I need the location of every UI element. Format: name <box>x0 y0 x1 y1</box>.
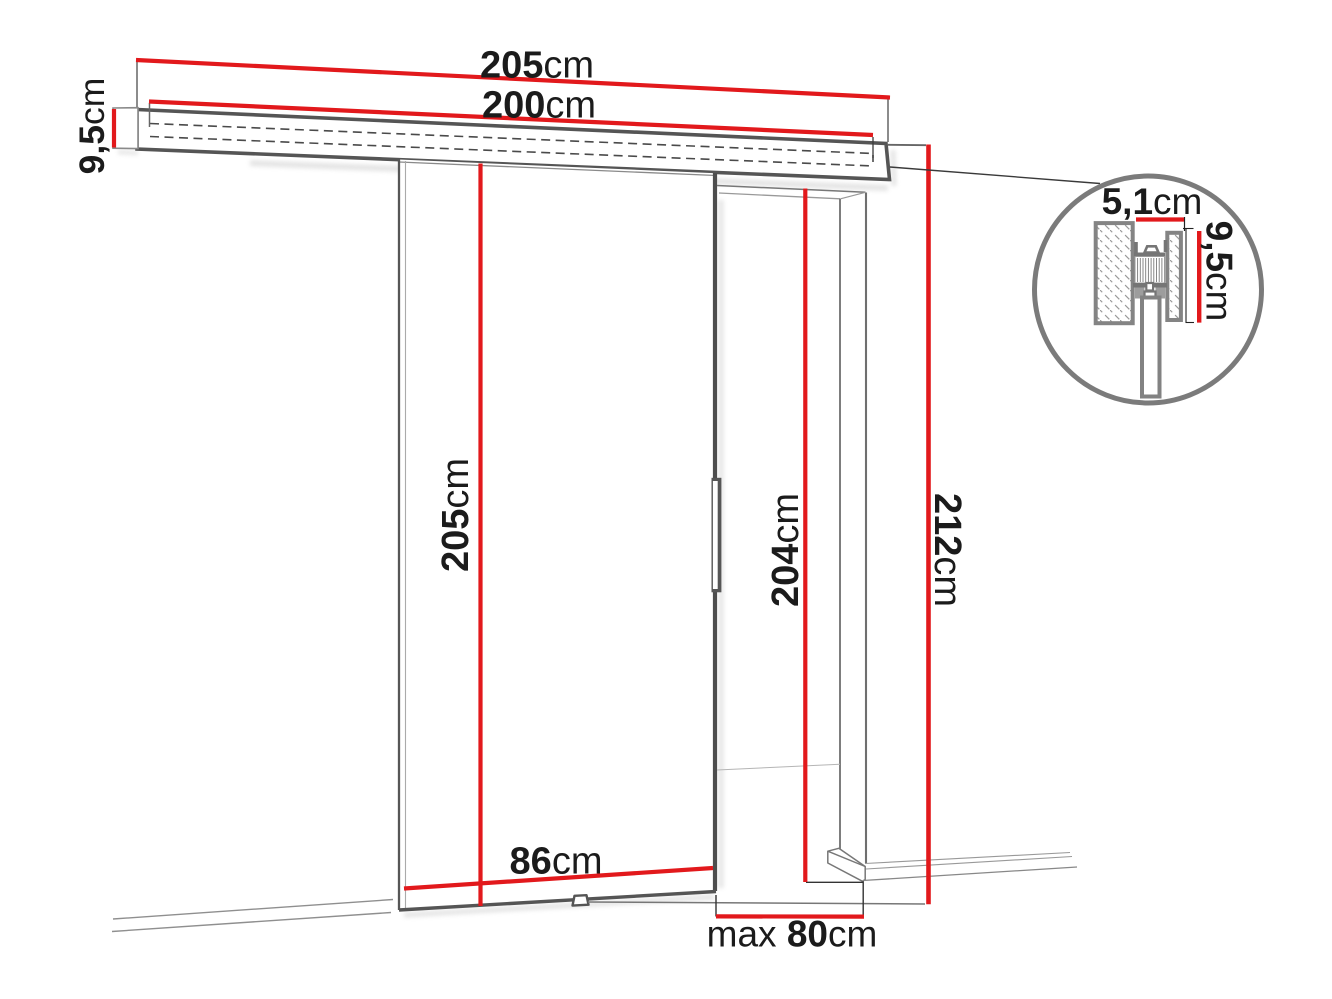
svg-text:205cm: 205cm <box>435 458 477 572</box>
svg-text:212cm: 212cm <box>926 493 968 607</box>
svg-text:5,1cm: 5,1cm <box>1102 181 1203 222</box>
svg-text:205cm: 205cm <box>480 45 594 87</box>
svg-text:86cm: 86cm <box>510 841 603 883</box>
svg-text:max 80cm: max 80cm <box>707 914 878 955</box>
svg-text:200cm: 200cm <box>482 85 596 127</box>
svg-text:9,5cm: 9,5cm <box>1199 221 1240 322</box>
svg-text:204cm: 204cm <box>765 493 807 607</box>
svg-text:9,5cm: 9,5cm <box>72 78 112 175</box>
